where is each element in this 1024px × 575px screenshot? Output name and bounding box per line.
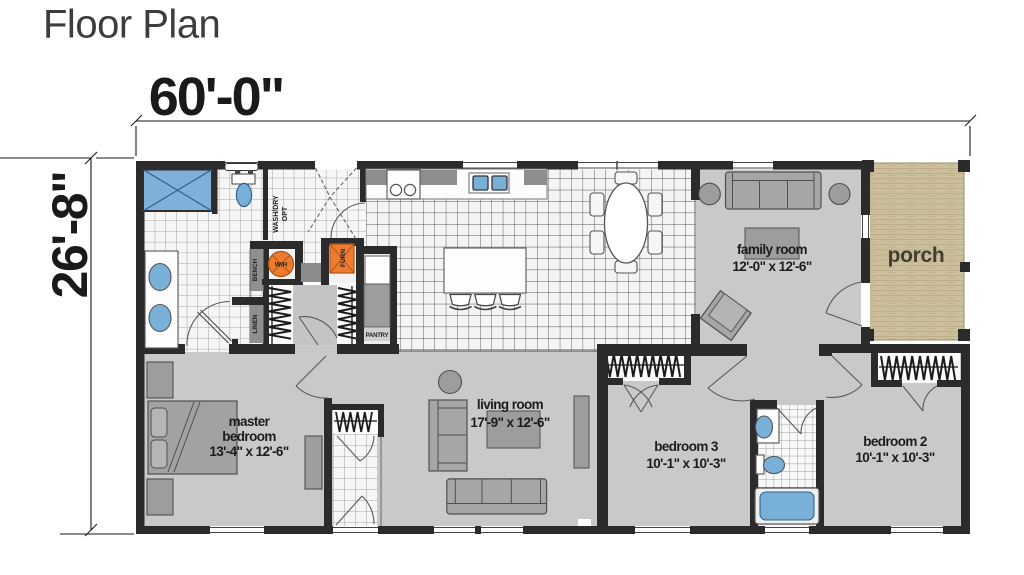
svg-text:family room: family room [737,242,808,257]
svg-text:13'-4" x 12'-6": 13'-4" x 12'-6" [209,444,288,459]
svg-text:porch: porch [888,244,945,267]
svg-text:10'-1" x 10'-3": 10'-1" x 10'-3" [855,450,934,465]
svg-text:W/H: W/H [275,262,288,269]
svg-text:PANTRY: PANTRY [366,333,389,339]
svg-text:bedroom: bedroom [222,429,276,444]
svg-text:Floor Plan: Floor Plan [43,3,220,47]
svg-text:bedroom 2: bedroom 2 [863,434,927,449]
svg-text:master: master [229,414,271,429]
svg-text:26'-8": 26'-8" [42,172,98,299]
svg-text:10'-1" x 10'-3": 10'-1" x 10'-3" [646,456,725,471]
svg-text:LINEN: LINEN [252,314,259,333]
svg-text:BENCH: BENCH [252,258,259,281]
svg-text:bedroom 3: bedroom 3 [654,439,719,454]
svg-text:12'-0" x 12'-6": 12'-0" x 12'-6" [732,259,811,274]
svg-text:living room: living room [477,397,544,412]
svg-text:OPT: OPT [282,206,289,221]
svg-text:WASH/DRY: WASH/DRY [273,195,280,233]
svg-text:FURN: FURN [340,249,347,267]
svg-text:17'-9" x 12'-6": 17'-9" x 12'-6" [470,415,549,430]
svg-text:60'-0": 60'-0" [149,67,284,127]
